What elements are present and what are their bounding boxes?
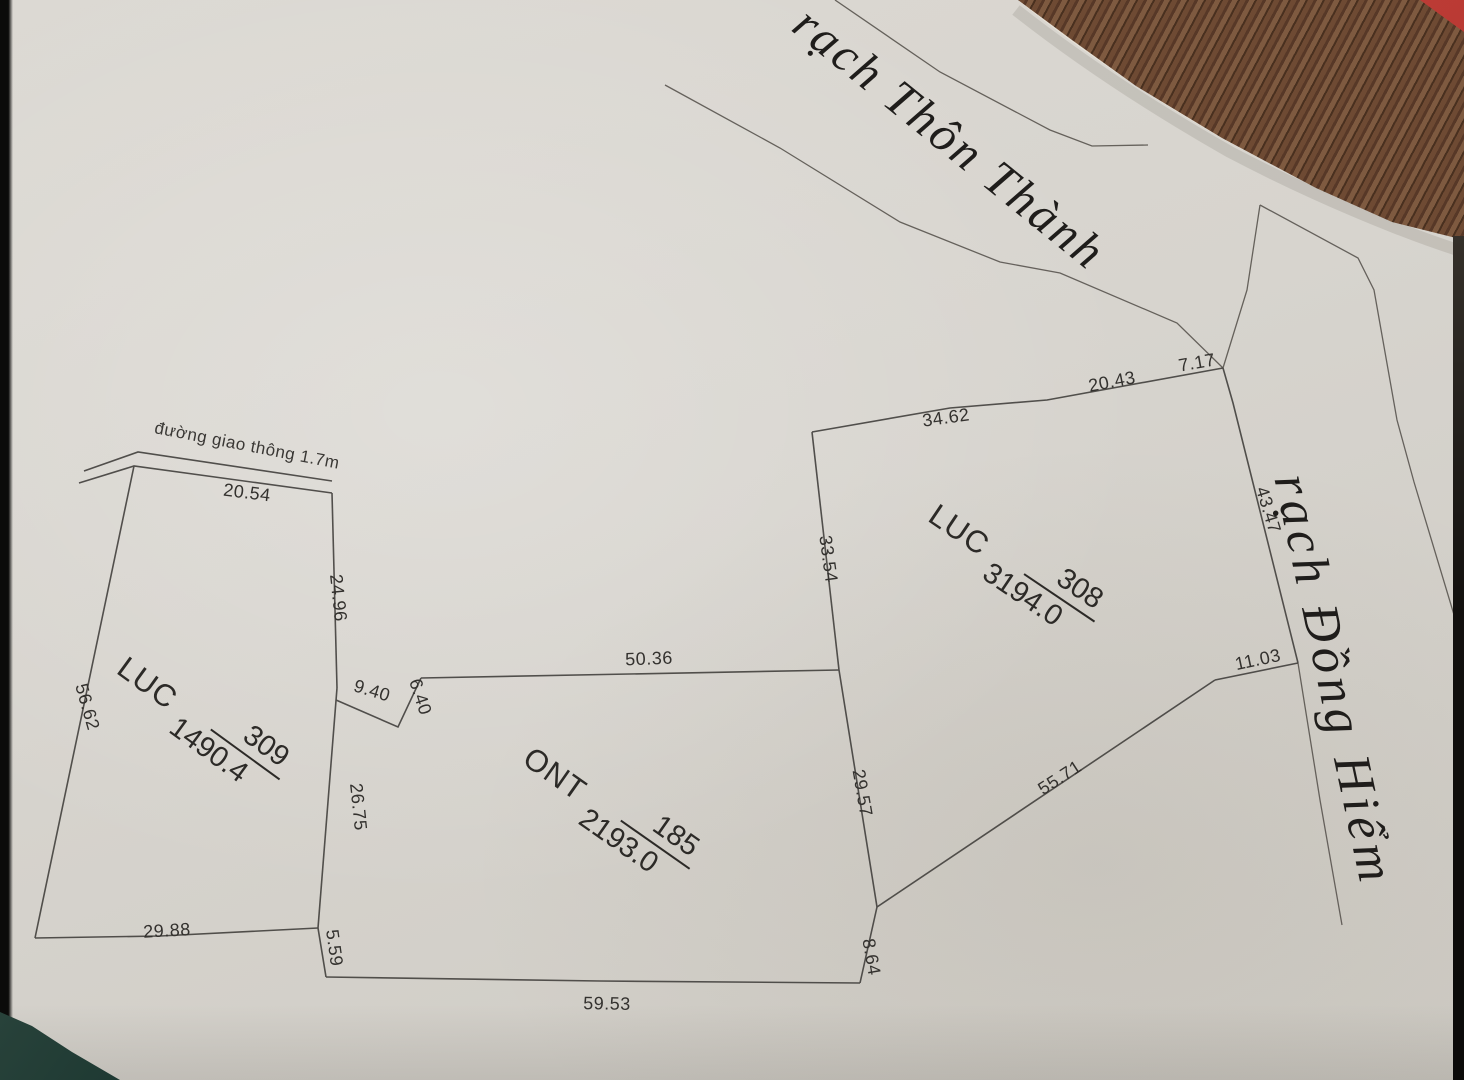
- dim-p309-bottom: 29.88: [143, 919, 192, 942]
- edge-26-75: [318, 688, 337, 928]
- photo-of-cadastral-map: { "photo": { "streams": { "thon_thanh": …: [0, 0, 1464, 1080]
- photo-edge-left: [0, 0, 13, 1080]
- edge-50-36: [421, 670, 839, 678]
- dong-hiem-left-bank: [1223, 205, 1260, 368]
- edge-59-53: [326, 977, 860, 983]
- dim-p185-top: 50.36: [625, 648, 673, 671]
- dim-p185-bottom: 59.53: [583, 993, 631, 1015]
- road-lower-edge-p309-top: [79, 466, 332, 493]
- edge-34-62-20-43: [812, 368, 1223, 432]
- survey-lines-svg: [0, 0, 1464, 1080]
- photo-edge-right: [1453, 236, 1464, 1080]
